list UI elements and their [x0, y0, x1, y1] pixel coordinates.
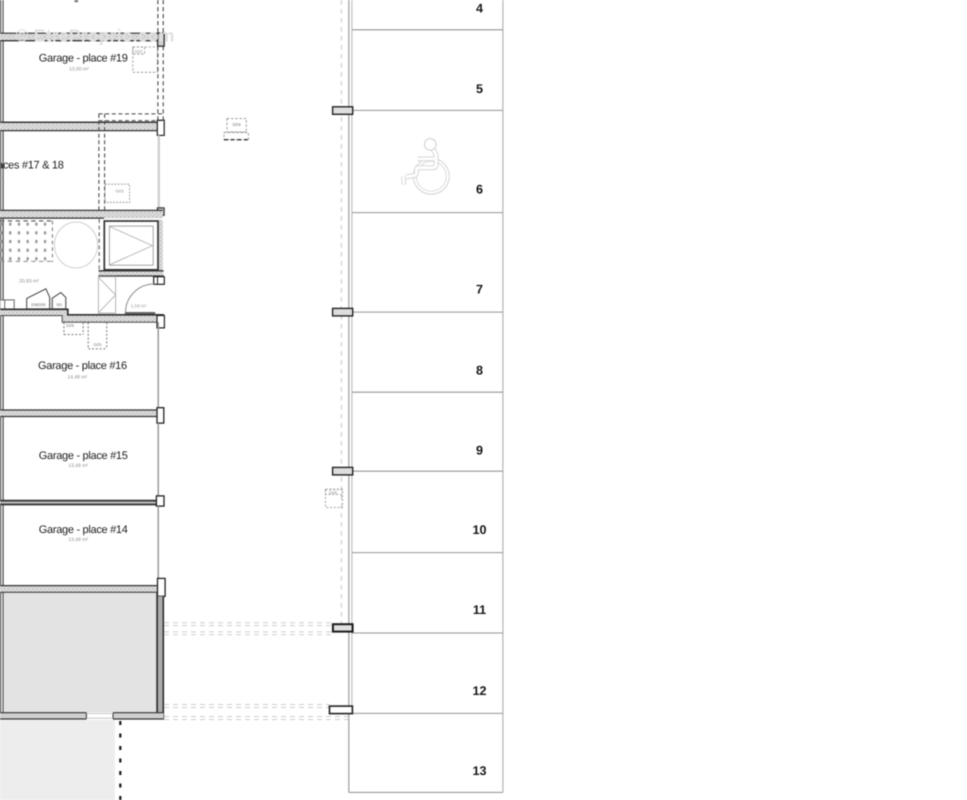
svg-text:10: 10	[472, 523, 486, 537]
svg-text:8: 8	[476, 364, 483, 378]
svg-text:Garage - place #19: Garage - place #19	[39, 53, 128, 65]
svg-text:ENEDIS: ENEDIS	[31, 303, 46, 307]
svg-text:11: 11	[473, 603, 486, 617]
svg-text:Garage - place #14: Garage - place #14	[39, 524, 128, 536]
svg-text:27,45 m²: 27,45 m²	[0, 175, 4, 181]
svg-text:9: 9	[476, 444, 483, 458]
svg-text:14,48 m²: 14,48 m²	[67, 375, 87, 381]
svg-text:SG: SG	[56, 303, 62, 307]
svg-text:G02: G02	[135, 49, 144, 54]
svg-text:4: 4	[476, 1, 483, 15]
svg-text:© EtreProprio.com: © EtreProprio.com	[16, 26, 175, 46]
svg-text:13,00 m²: 13,00 m²	[69, 66, 89, 72]
svg-text:G04: G04	[232, 122, 241, 127]
svg-text:13,49 m²: 13,49 m²	[68, 537, 88, 543]
svg-text:G06: G06	[329, 490, 338, 495]
svg-text:12: 12	[472, 684, 486, 698]
svg-text:G05: G05	[93, 342, 102, 347]
svg-text:6: 6	[476, 183, 483, 197]
svg-text:5: 5	[476, 82, 483, 96]
svg-text:13,49 m²: 13,49 m²	[68, 463, 88, 469]
svg-text:7: 7	[476, 282, 483, 296]
svg-text:Garage - places #17 & 18: Garage - places #17 & 18	[0, 159, 64, 171]
svg-text:G03: G03	[116, 189, 125, 194]
svg-text:Garage - place #16: Garage - place #16	[38, 360, 127, 372]
svg-text:13: 13	[472, 764, 486, 778]
svg-text:Garage - place #15: Garage - place #15	[39, 450, 128, 462]
svg-text:20,83 m²: 20,83 m²	[19, 278, 39, 284]
svg-text:G09: G09	[66, 323, 75, 328]
svg-text:1,59 m²: 1,59 m²	[131, 303, 147, 308]
